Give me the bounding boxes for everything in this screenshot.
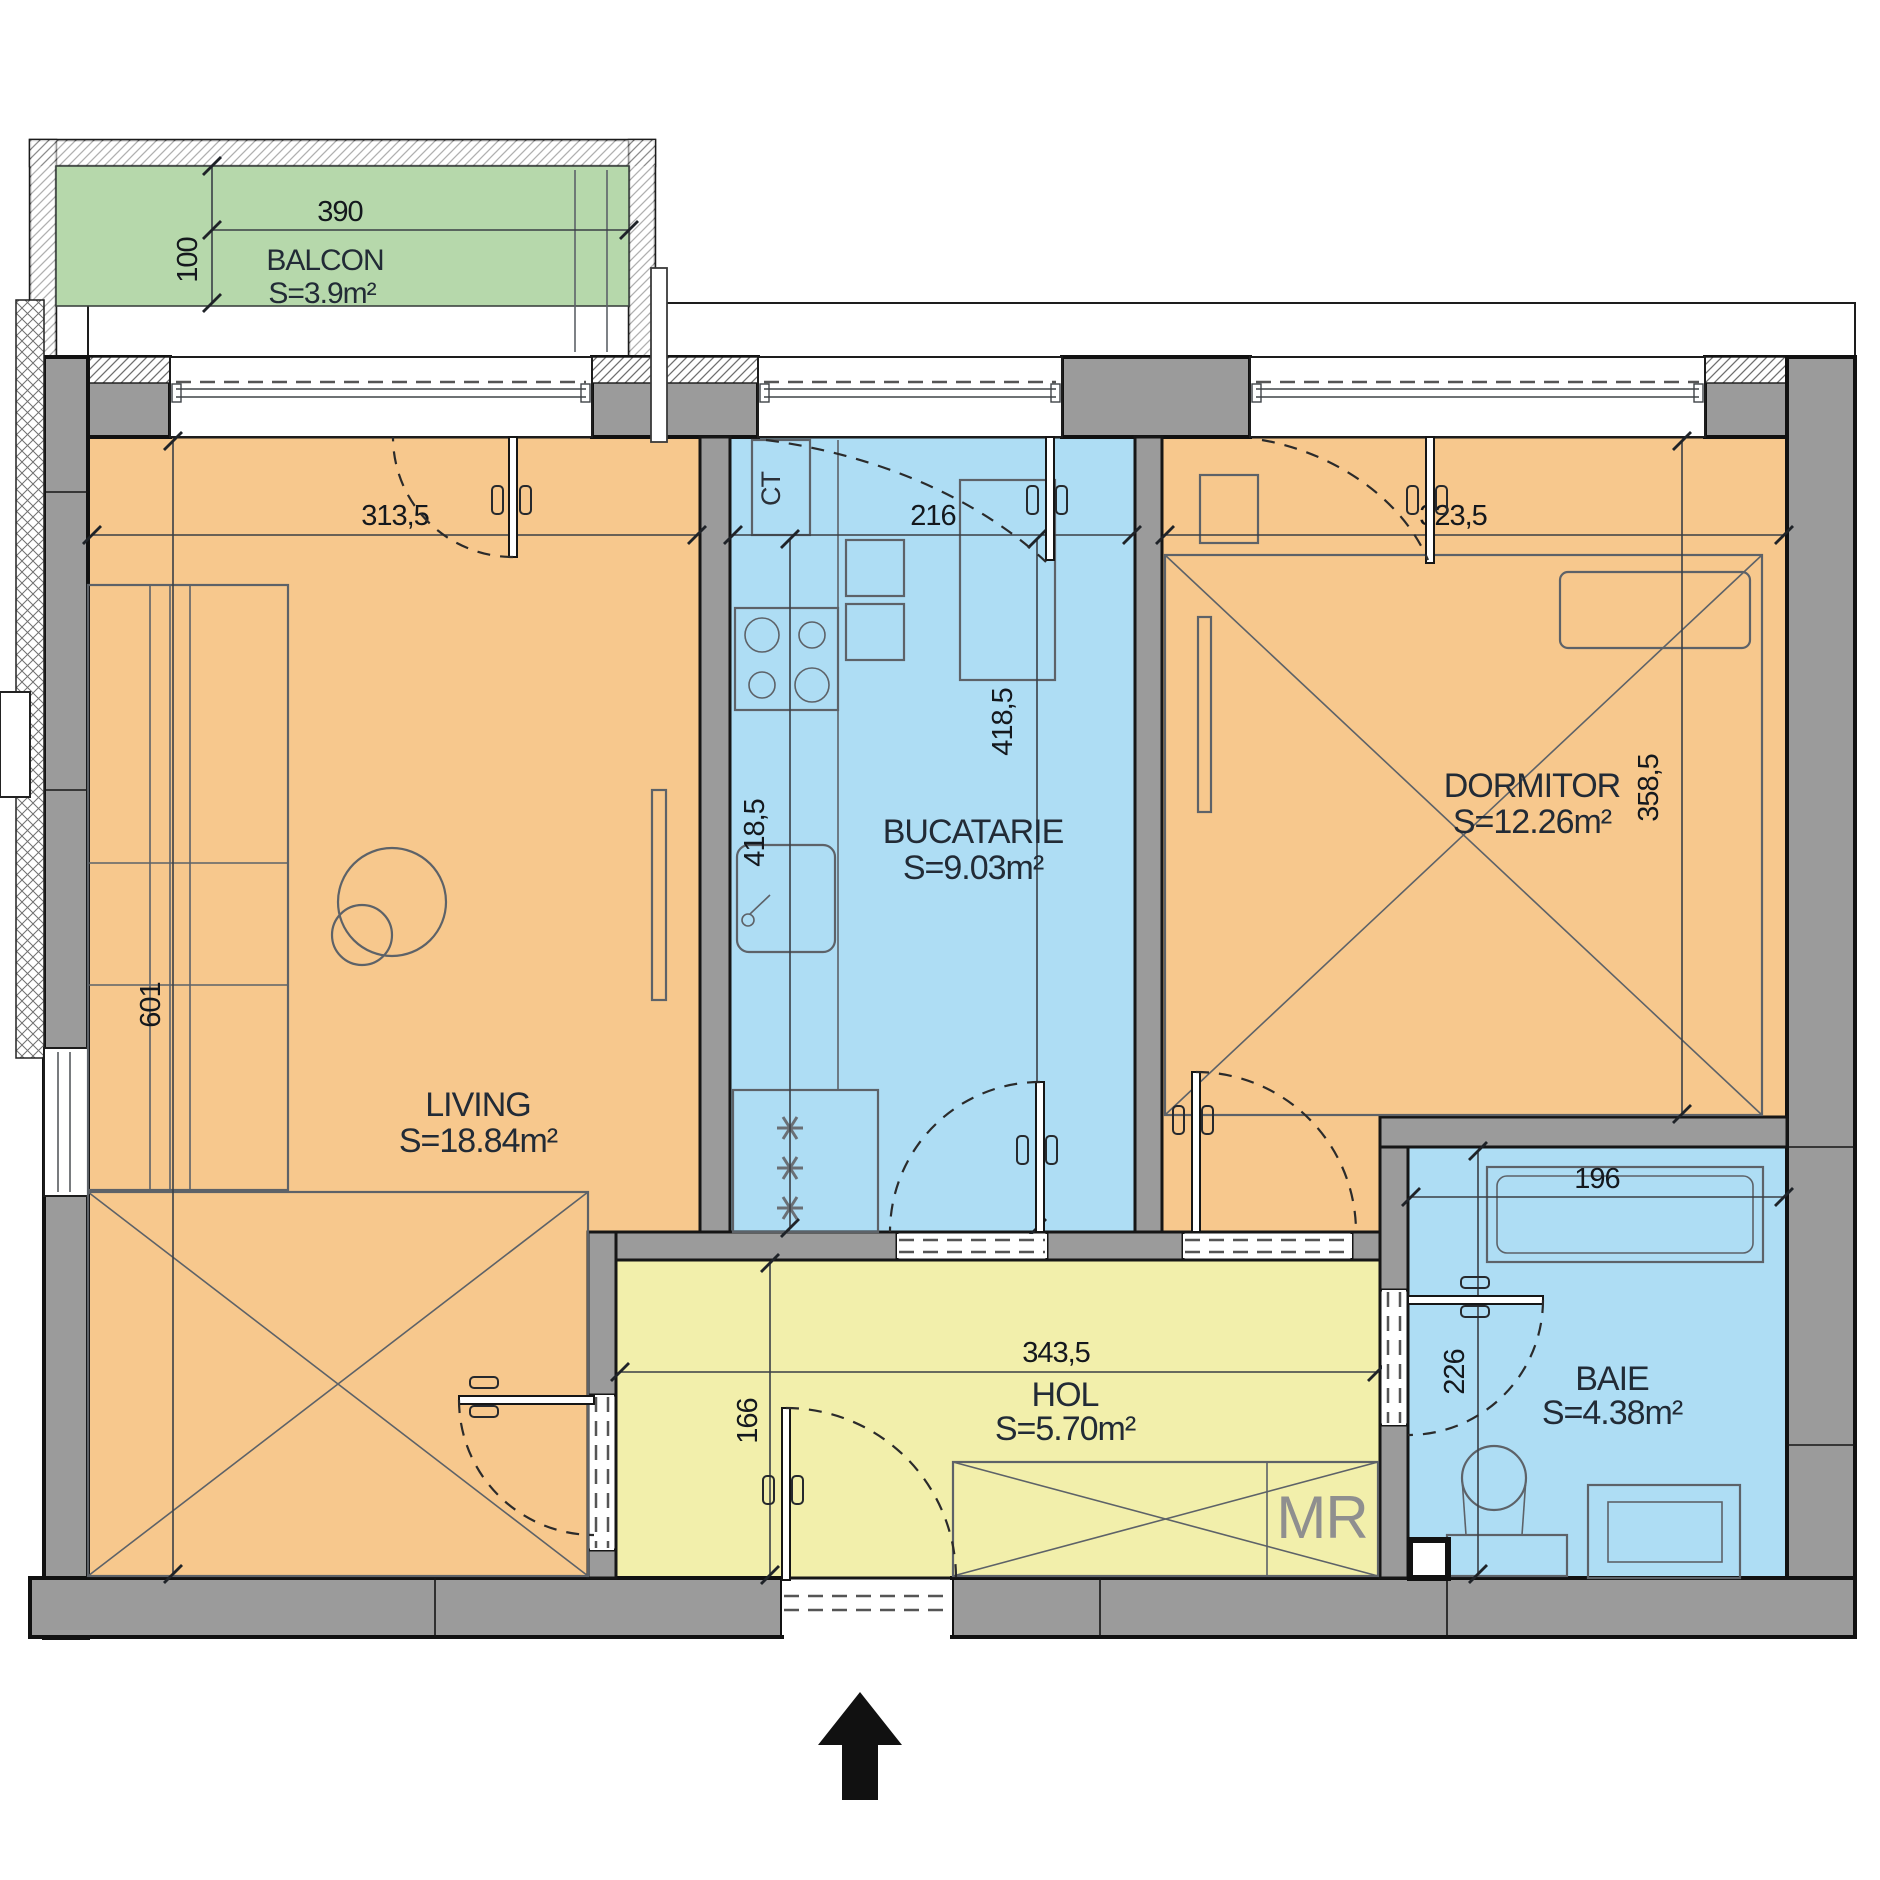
balcony-label: BALCON bbox=[266, 244, 383, 277]
dim-balcony-depth: 100 bbox=[172, 237, 204, 282]
bedroom-area: S=12.26m² bbox=[1453, 803, 1612, 841]
window-sill-band bbox=[88, 303, 1855, 359]
wall-hall-bath bbox=[1380, 1147, 1408, 1290]
duct bbox=[1410, 1540, 1448, 1578]
wall-bedroom-bath bbox=[1380, 1117, 1787, 1147]
dim-bathroom-width: 196 bbox=[1574, 1163, 1619, 1195]
wall-insulation-strip bbox=[16, 300, 44, 1058]
wall-living-kitchen bbox=[700, 437, 730, 1232]
kitchen-door-threshold bbox=[897, 1234, 1047, 1258]
bedroom-label: DORMITOR bbox=[1444, 767, 1620, 805]
living-door-leaf bbox=[459, 1396, 594, 1404]
balcony-area: S=3.9m² bbox=[268, 277, 376, 310]
left-wall-window bbox=[44, 1048, 88, 1196]
bathroom-door-leaf bbox=[1408, 1296, 1543, 1304]
dim-living-depth: 601 bbox=[135, 982, 167, 1027]
dim-balcony-width: 390 bbox=[317, 196, 362, 228]
wall-hall-top bbox=[616, 1232, 897, 1260]
dim-hall-width: 343,5 bbox=[1022, 1337, 1090, 1369]
wall-living-hall bbox=[588, 1232, 616, 1395]
room-floors bbox=[88, 437, 1787, 1578]
living-door-threshold bbox=[590, 1395, 614, 1550]
wall-left bbox=[44, 357, 88, 1638]
dim-living-width: 313,5 bbox=[361, 500, 429, 532]
wall-insulation bbox=[1705, 357, 1787, 383]
dim-kitchen-width: 216 bbox=[910, 500, 955, 532]
dim-kitchen-depth-right: 418,5 bbox=[987, 688, 1019, 756]
floor-plan-page: 390 100 BALCON S=3.9m² bbox=[0, 0, 1880, 1880]
living-label: LIVING bbox=[425, 1086, 530, 1124]
kitchen-window-leaf bbox=[1046, 437, 1054, 560]
bathroom-area: S=4.38m² bbox=[1542, 1394, 1683, 1432]
hall-area: S=5.70m² bbox=[995, 1410, 1136, 1448]
wall-kitchen-bedroom bbox=[1135, 437, 1162, 1232]
wall-ledge bbox=[0, 692, 30, 797]
wall-hall-bath bbox=[1380, 1425, 1408, 1578]
boiler-label: CT bbox=[756, 472, 786, 506]
hall-label: HOL bbox=[1032, 1376, 1099, 1414]
balcony-wall-hatch bbox=[30, 140, 655, 166]
kitchen-area: S=9.03m² bbox=[903, 849, 1044, 887]
washer-closet-label: MR bbox=[1276, 1484, 1367, 1551]
dim-kitchen-depth-left: 418,5 bbox=[739, 799, 771, 867]
sill-band bbox=[88, 303, 1855, 359]
wall-bottom bbox=[30, 1578, 782, 1637]
dim-hall-depth: 166 bbox=[732, 1398, 764, 1443]
bathroom-door-threshold bbox=[1382, 1290, 1406, 1425]
living-area: S=18.84m² bbox=[399, 1122, 558, 1160]
balcony-door-leaf bbox=[509, 437, 517, 557]
bedroom-door-leaf bbox=[1192, 1072, 1200, 1232]
dim-bedroom-depth: 358,5 bbox=[1633, 754, 1665, 822]
kitchen-door-leaf bbox=[1036, 1082, 1044, 1232]
wall-hall-top bbox=[1047, 1232, 1183, 1260]
dim-bathroom-depth: 226 bbox=[1439, 1349, 1471, 1394]
pipe bbox=[651, 268, 667, 442]
entrance-door-leaf bbox=[782, 1408, 790, 1580]
entrance-threshold bbox=[782, 1580, 952, 1635]
wall-pier bbox=[1062, 357, 1250, 437]
wall-living-hall bbox=[588, 1550, 616, 1578]
bedroom-window-leaf bbox=[1426, 437, 1434, 563]
wall-insulation bbox=[592, 357, 758, 383]
floor-plan: 390 100 BALCON S=3.9m² bbox=[0, 0, 1880, 1880]
kitchen-label: BUCATARIE bbox=[883, 813, 1064, 851]
wall-bottom bbox=[952, 1578, 1855, 1637]
entrance-arrow-icon bbox=[818, 1692, 902, 1800]
bedroom-door-threshold bbox=[1183, 1234, 1352, 1258]
bathroom-label: BAIE bbox=[1575, 1360, 1649, 1398]
